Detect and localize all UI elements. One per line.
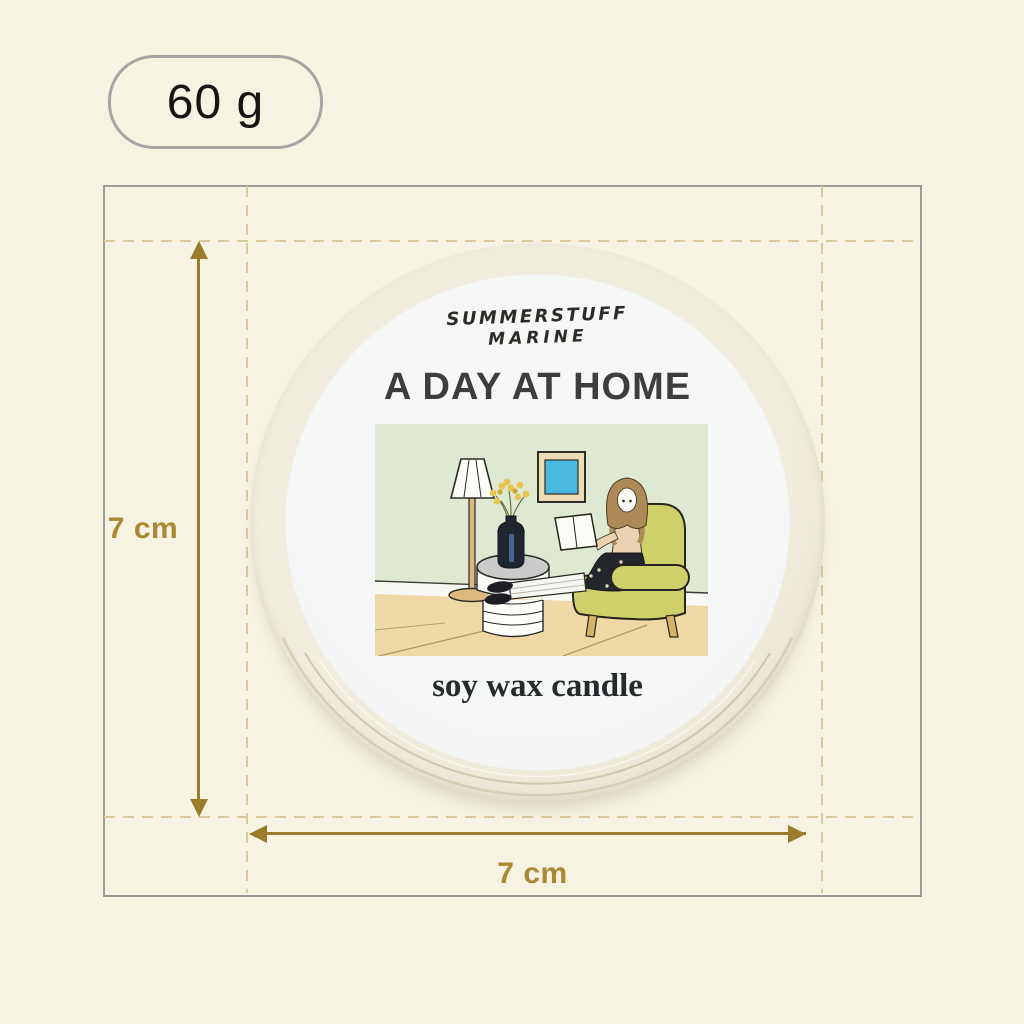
width-dimension-line bbox=[263, 832, 806, 835]
height-dimension-arrow-up-icon bbox=[190, 241, 208, 259]
candle-tin: SUMMERSTUFF MARINE A DAY AT HOME bbox=[250, 243, 825, 803]
product-subtitle: soy wax candle bbox=[285, 668, 790, 705]
width-dimension-arrow-left-icon bbox=[249, 825, 267, 843]
dashed-guide-top bbox=[104, 240, 918, 242]
width-dimension-arrow-right-icon bbox=[788, 825, 806, 843]
weight-badge: 60 g bbox=[108, 55, 323, 149]
height-dimension-line bbox=[197, 256, 200, 802]
height-dimension-label: 7 cm bbox=[93, 512, 193, 546]
picture-frame bbox=[538, 452, 585, 502]
width-dimension-label: 7 cm bbox=[470, 857, 595, 891]
armrest bbox=[611, 565, 689, 590]
height-dimension-arrow-down-icon bbox=[190, 799, 208, 817]
room-illustration bbox=[375, 424, 708, 656]
dashed-guide-bottom bbox=[104, 816, 918, 818]
product-title: A DAY AT HOME bbox=[285, 366, 790, 409]
weight-badge-label: 60 g bbox=[167, 75, 264, 130]
tin-label: SUMMERSTUFF MARINE A DAY AT HOME bbox=[285, 274, 790, 771]
product-dimension-diagram: 60 g 7 cm 7 cm SUMMERSTUFF MARINE A DAY … bbox=[0, 0, 1024, 1024]
dashed-guide-left bbox=[246, 186, 248, 893]
book bbox=[555, 514, 597, 550]
